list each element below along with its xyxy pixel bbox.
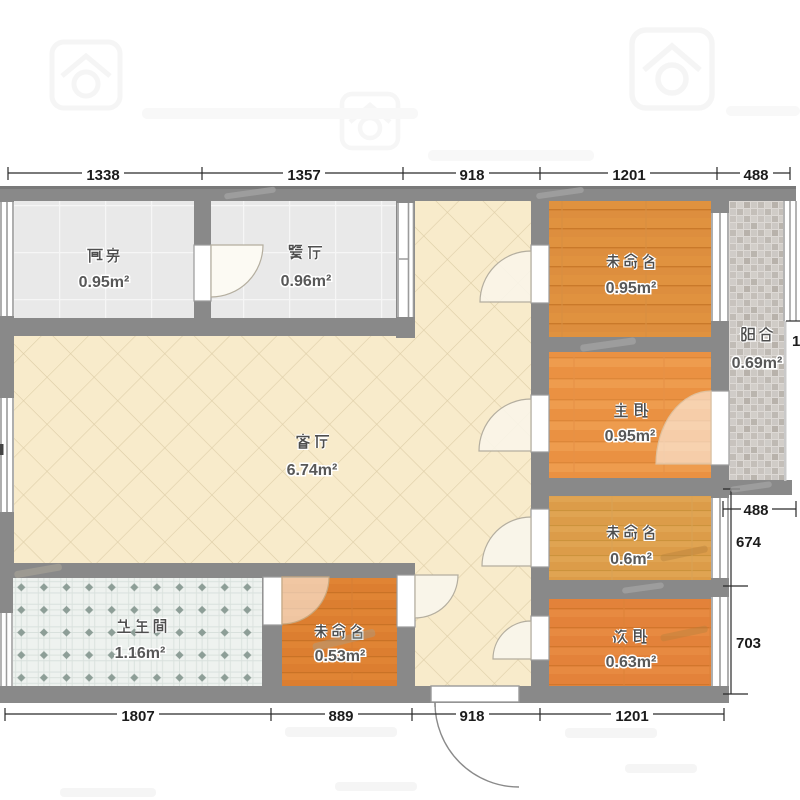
svg-text:1357: 1357 <box>287 167 320 184</box>
svg-text:1.16m²: 1.16m² <box>115 645 166 662</box>
svg-text:6.74m²: 6.74m² <box>287 462 338 479</box>
svg-text:0.69m²: 0.69m² <box>732 355 783 372</box>
svg-text:1201: 1201 <box>612 167 645 184</box>
svg-text:0.95m²: 0.95m² <box>79 274 130 291</box>
svg-text:918: 918 <box>459 167 484 184</box>
svg-text:0.96m²: 0.96m² <box>281 273 332 290</box>
svg-text:674: 674 <box>736 534 762 551</box>
svg-text:0.6m²: 0.6m² <box>610 551 652 568</box>
svg-text:889: 889 <box>328 708 353 725</box>
svg-text:0.95m²: 0.95m² <box>605 428 656 445</box>
svg-text:0.63m²: 0.63m² <box>606 654 657 671</box>
svg-text:1338: 1338 <box>86 167 119 184</box>
svg-text:488: 488 <box>743 502 768 519</box>
svg-text:1201: 1201 <box>615 708 648 725</box>
svg-text:1: 1 <box>792 333 800 350</box>
svg-text:1807: 1807 <box>121 708 154 725</box>
svg-text:488: 488 <box>743 167 768 184</box>
svg-text:0.53m²: 0.53m² <box>315 648 366 665</box>
svg-text:703: 703 <box>736 635 761 652</box>
svg-text:918: 918 <box>459 708 484 725</box>
svg-text:0.95m²: 0.95m² <box>606 280 657 297</box>
